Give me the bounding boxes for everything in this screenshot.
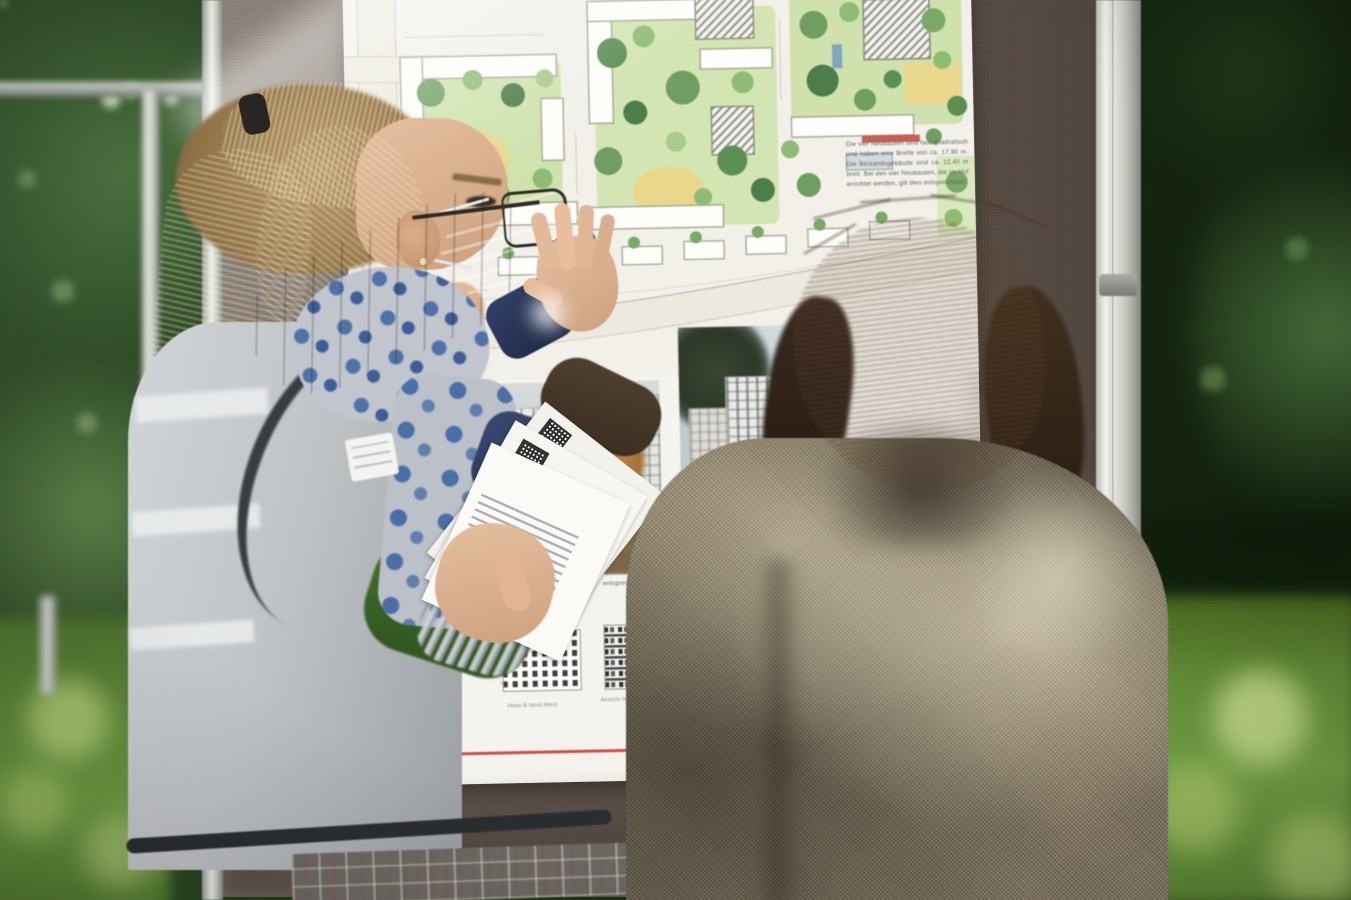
outdoor-scene: Die vier Neubauten sind fast quadratisch… xyxy=(0,0,1351,900)
pinboard-frame-hinge xyxy=(1099,274,1137,296)
bokeh-light-dots xyxy=(0,0,6,6)
foliage-blob xyxy=(1120,0,1351,200)
sun-glare-on-hand xyxy=(520,290,576,336)
coat-arm-seam-shadow xyxy=(756,560,800,900)
finger xyxy=(577,205,594,269)
vest-name-badge xyxy=(345,432,400,482)
elevation-caption-left: Haus B Nord-West xyxy=(508,702,588,710)
coat-sunlit-shoulder xyxy=(972,466,1142,676)
play-frame-leg xyxy=(40,596,56,694)
lawn-right-sun-spots xyxy=(1140,640,1351,900)
